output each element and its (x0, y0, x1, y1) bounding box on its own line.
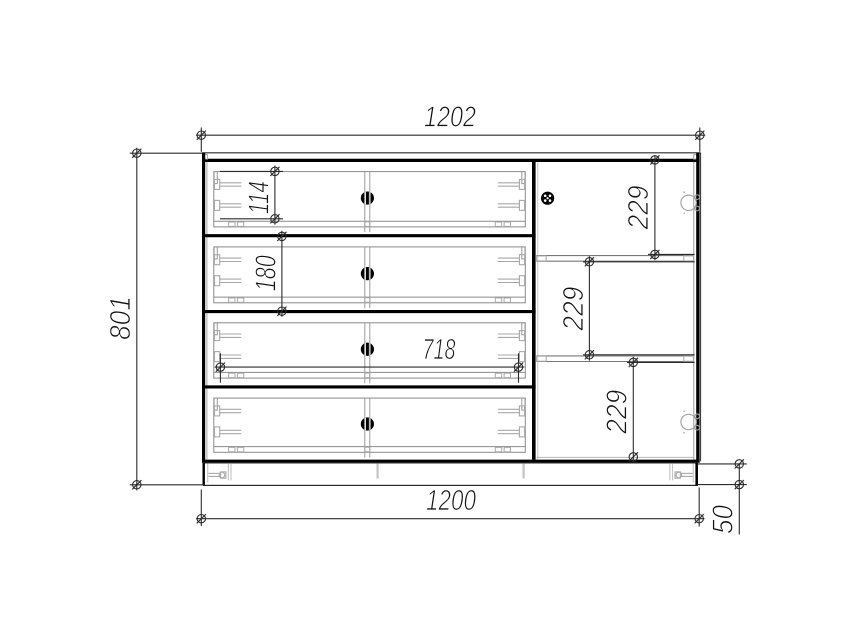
svg-text:718: 718 (423, 334, 456, 366)
svg-text:50: 50 (708, 505, 740, 534)
svg-text:180: 180 (251, 255, 283, 291)
svg-text:229: 229 (558, 287, 590, 332)
svg-text:801: 801 (105, 296, 137, 340)
svg-text:229: 229 (623, 185, 655, 230)
svg-text:114: 114 (244, 181, 276, 214)
svg-text:1200: 1200 (426, 485, 476, 517)
svg-text:1202: 1202 (424, 102, 476, 134)
svg-text:229: 229 (602, 390, 634, 435)
